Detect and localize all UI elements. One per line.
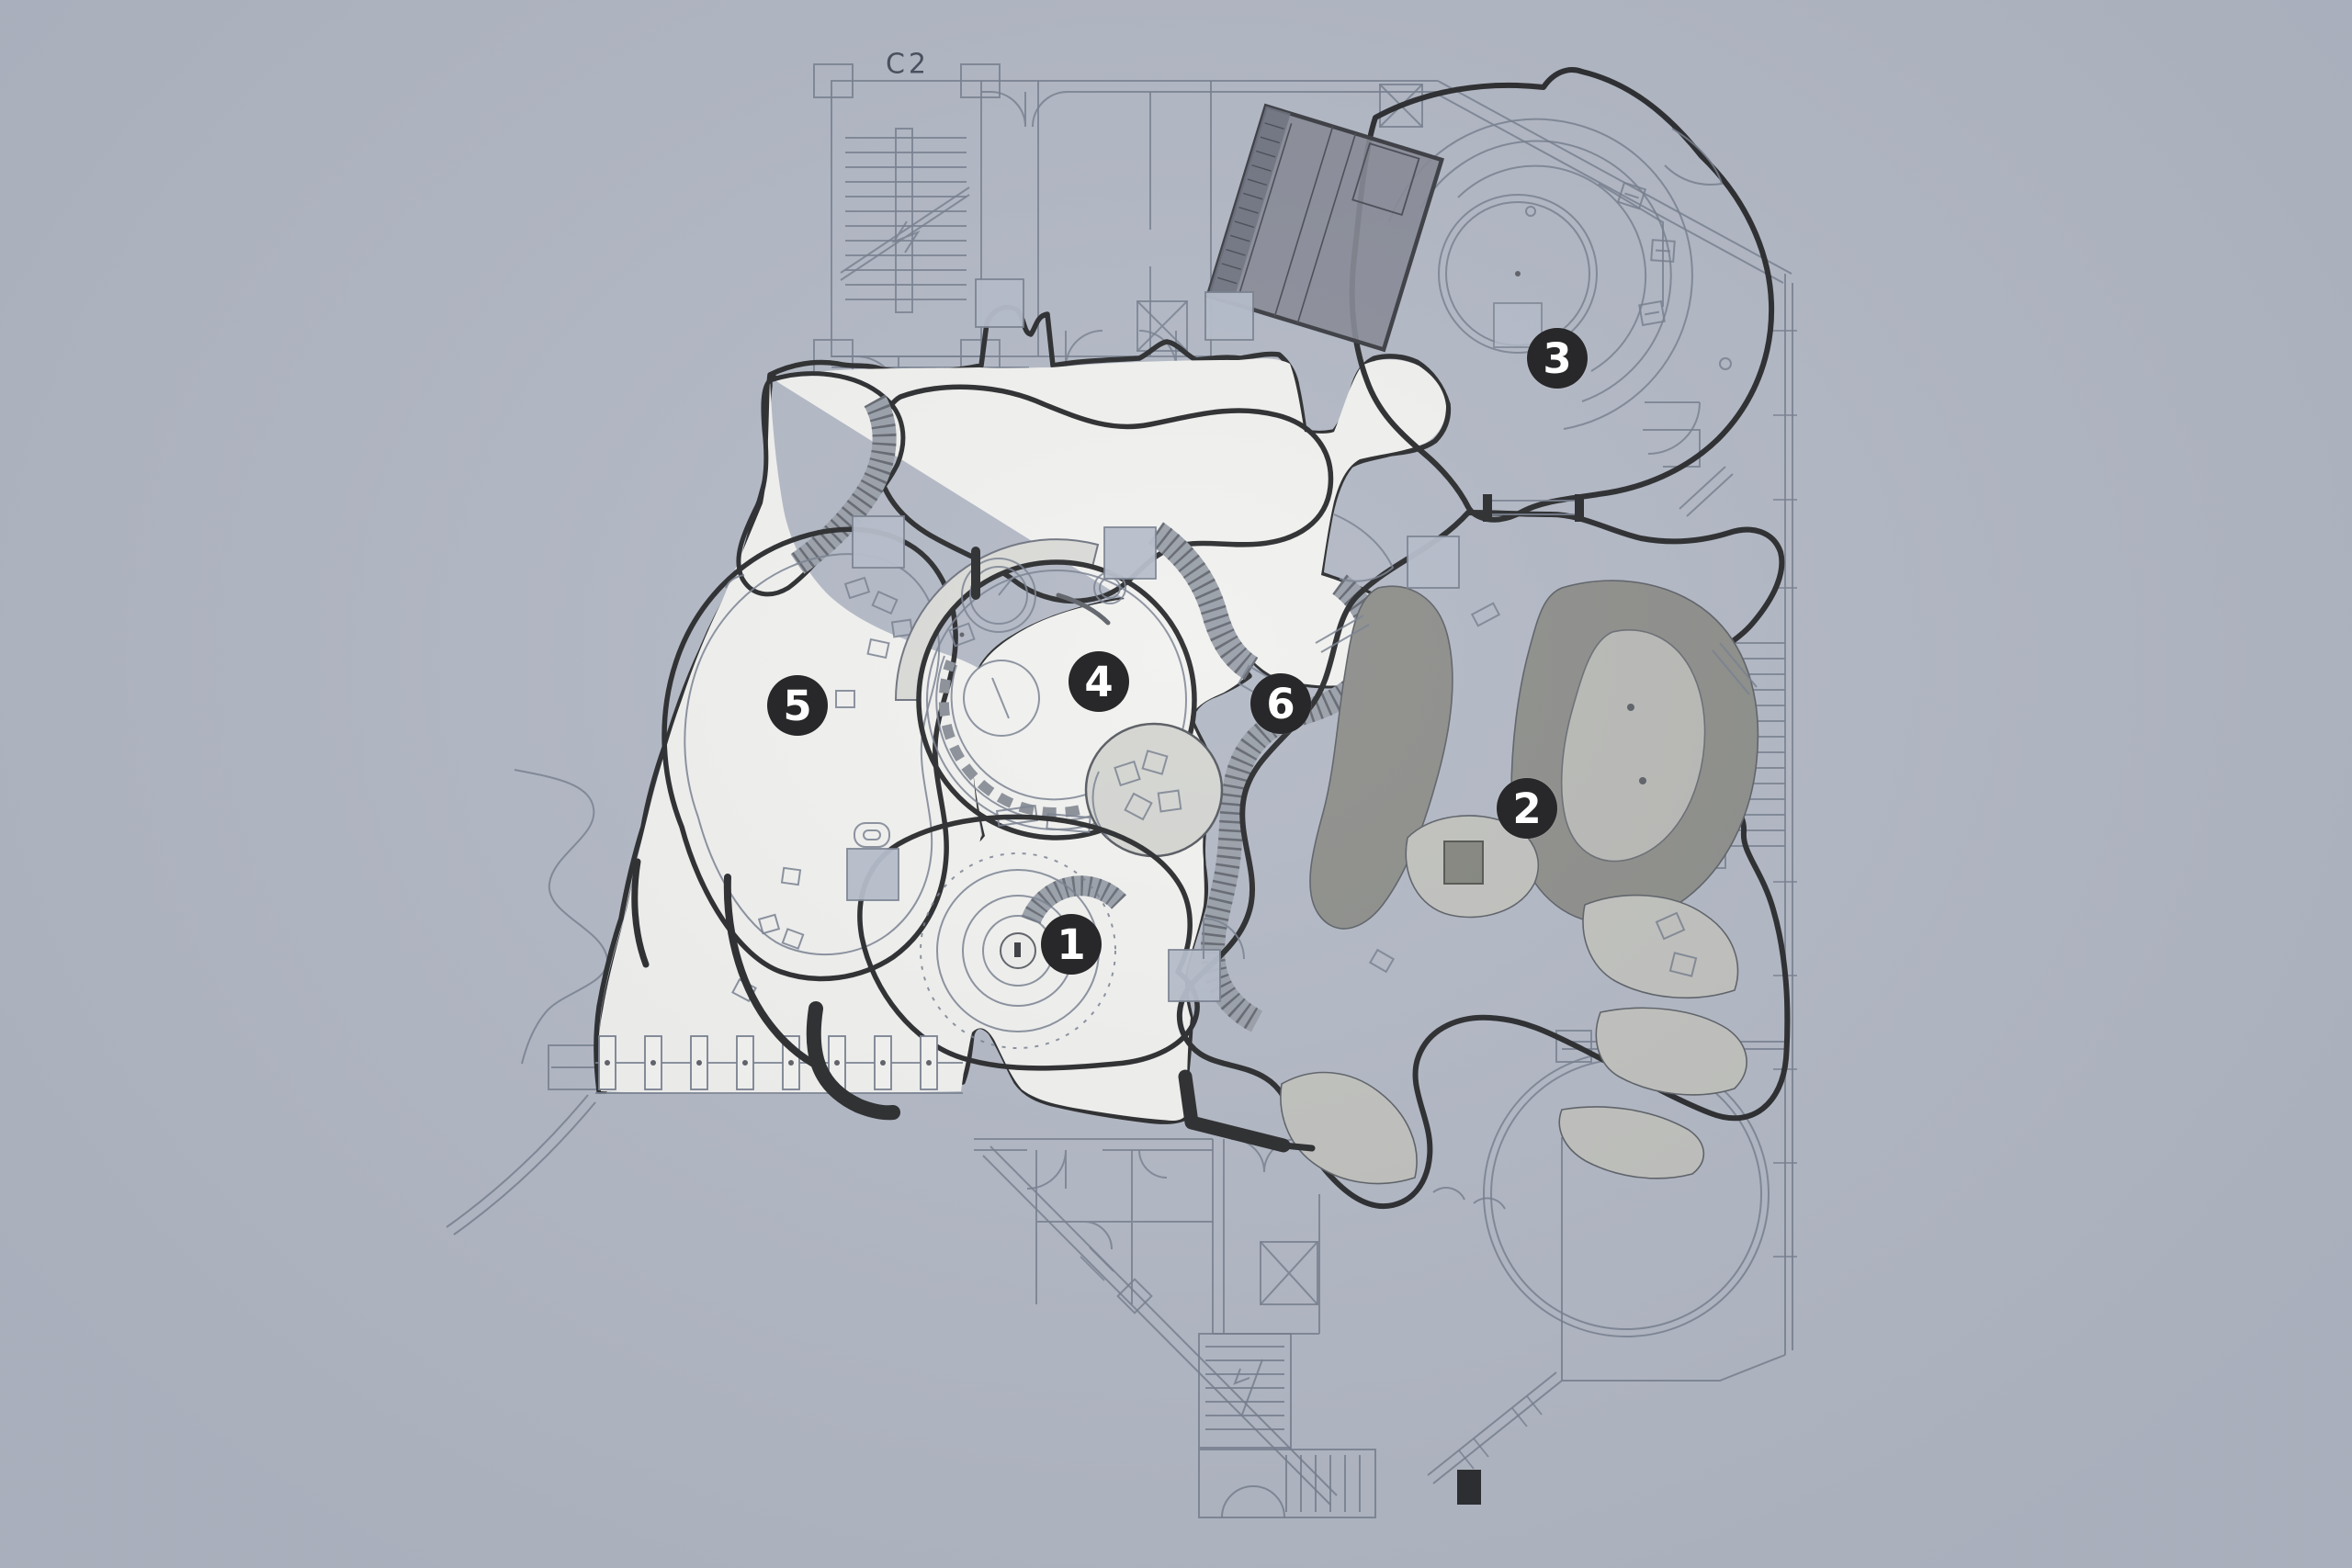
zone-marker-4: 4 bbox=[1069, 651, 1129, 712]
floor-plan-canvas: 123456 C2 bbox=[0, 0, 2352, 1568]
zone-marker-6: 6 bbox=[1250, 673, 1311, 734]
zone3-spiral-gallery bbox=[1352, 70, 1771, 522]
zone-marker-2: 2 bbox=[1497, 778, 1557, 839]
zone-marker-3: 3 bbox=[1527, 328, 1588, 389]
zone-marker-5: 5 bbox=[767, 675, 828, 736]
grid-label: C2 bbox=[886, 49, 930, 81]
floor-plan-drawing bbox=[0, 0, 2352, 1568]
zone-marker-1: 1 bbox=[1041, 914, 1102, 975]
